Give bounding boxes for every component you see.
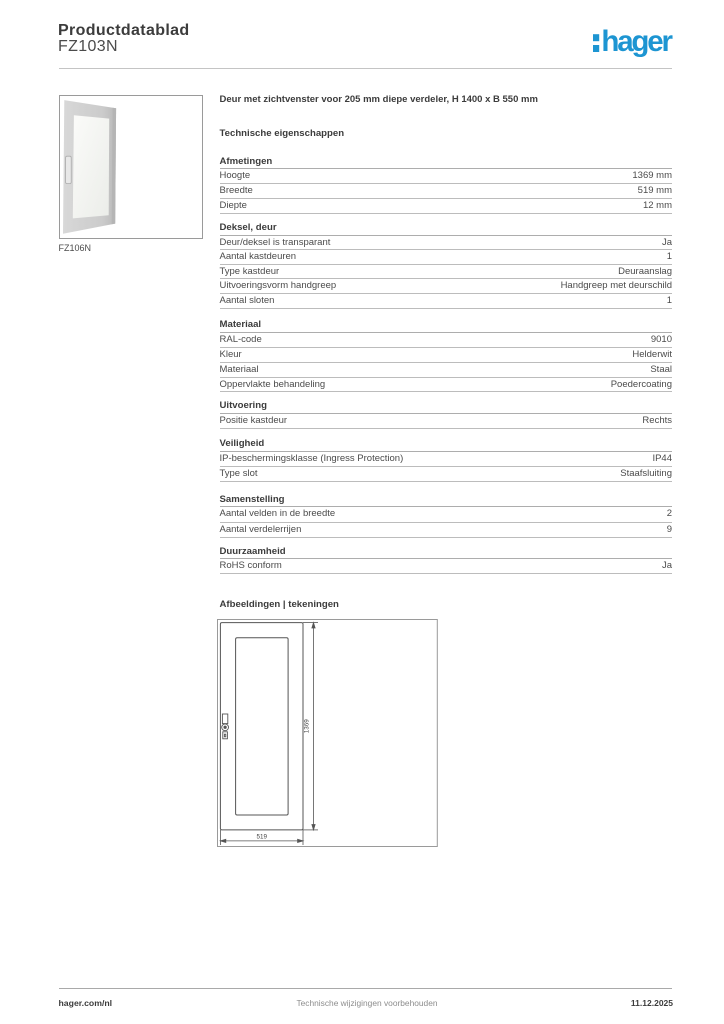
svg-text:519: 519 [256, 833, 267, 840]
svg-text:hager: hager [601, 26, 673, 58]
svg-text:1369: 1369 [303, 718, 310, 732]
